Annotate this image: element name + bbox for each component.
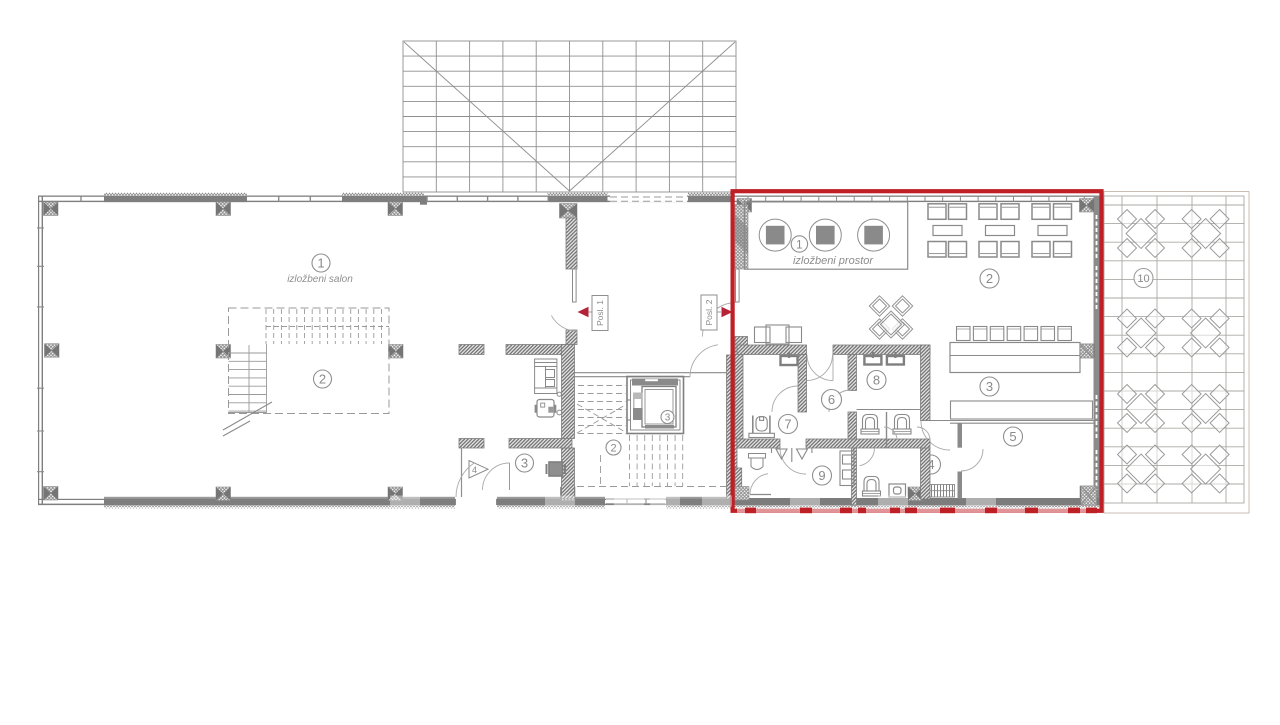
svg-text:2: 2 [986, 271, 993, 286]
svg-text:izložbeni prostor: izložbeni prostor [793, 255, 874, 267]
svg-text:9: 9 [818, 468, 825, 483]
svg-text:6: 6 [828, 392, 835, 407]
svg-text:izložbeni salon: izložbeni salon [287, 274, 353, 285]
svg-text:1: 1 [317, 256, 324, 271]
svg-text:7: 7 [784, 417, 791, 432]
svg-text:5: 5 [1009, 429, 1016, 444]
svg-text:1: 1 [796, 237, 803, 251]
svg-text:Posl. 2: Posl. 2 [704, 299, 714, 325]
svg-text:Posl. 1: Posl. 1 [595, 300, 605, 326]
svg-text:4: 4 [472, 465, 477, 475]
svg-text:10: 10 [1137, 273, 1149, 285]
svg-text:2: 2 [610, 442, 616, 454]
svg-text:3: 3 [521, 456, 528, 471]
svg-text:2: 2 [319, 372, 326, 387]
svg-text:3: 3 [665, 413, 671, 424]
svg-text:8: 8 [873, 373, 880, 388]
svg-text:3: 3 [986, 379, 993, 394]
